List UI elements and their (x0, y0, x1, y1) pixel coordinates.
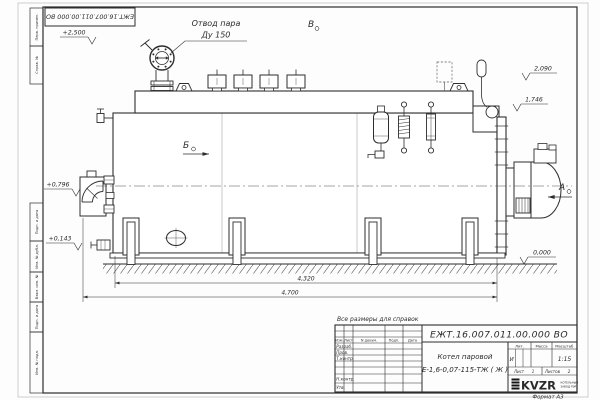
lifting-lug-right (450, 84, 468, 92)
ground (103, 264, 557, 274)
sheet-value: 1 (532, 369, 535, 374)
elevation-label: +0,796 (47, 182, 70, 189)
top-stamp: ЕЖТ.16.007.011.00.000 ВО (45, 8, 135, 26)
sheets-label: Листов (544, 369, 561, 374)
view-label-a: А (558, 183, 565, 193)
boiler-drawing: Отвод пара Ду 150 (44, 19, 572, 302)
margin-label-inv-dubl: Инв. № дубл. (35, 244, 39, 269)
product-name-line2: Е-1,6-0,07-115-ТЖ ( Ж ) (422, 366, 508, 374)
elevation-label: 1,746 (525, 97, 543, 104)
margin-label-inv-podl: Инв. № подл. (35, 350, 39, 375)
margin-labels: Перв. примен. Справ. № Подп. и дата Инв.… (35, 14, 39, 375)
steam-outlet-label-1: Отвод пара (192, 19, 241, 28)
sheets-value: 2 (568, 369, 571, 374)
elevation-label: +0,143 (49, 236, 72, 243)
sheet-label: Лист (513, 369, 525, 374)
burner (506, 144, 561, 219)
row-nkontr: Н.контр. (336, 377, 354, 382)
margin-label-podp-data-1: Подп. и дата (35, 210, 39, 234)
product-name-line1: Котел паровой (438, 353, 493, 361)
logo-bars-icon (512, 379, 520, 390)
elevation-mark-1746: 1,746 (513, 97, 548, 112)
view-arrow-v: В (308, 20, 319, 30)
elevation-mark-0143: +0,143 (46, 236, 82, 251)
elevation-mark-0796: +0,796 (44, 182, 80, 197)
burner-grill (516, 198, 530, 213)
margin-label-vzam-inv: Взам. инв. № (35, 275, 39, 300)
ground-hatch (103, 264, 557, 274)
row-tkontr: Т.контр. (336, 356, 354, 361)
top-stamp-text: ЕЖТ.16.007.011.00.000 ВО (46, 13, 134, 20)
margin-label-podp-data-2: Подп. и дата (35, 305, 39, 329)
format-note: Формат А3 (532, 395, 564, 400)
logo-subtext-2: ЗАВОД РЭР (561, 385, 577, 389)
doc-number: ЕЖТ.16.007.011.00.000 ВО (430, 330, 568, 341)
steam-outlet-callout: Отвод пара Ду 150 (171, 19, 247, 53)
elevation-mark-2500: +2,500 (60, 30, 96, 45)
hatch-box (260, 70, 278, 92)
blowdown-valve (91, 240, 110, 250)
col-header-ndoc: N докум. (361, 338, 377, 342)
lifting-lug-left (176, 84, 192, 92)
lit-value: И (510, 357, 514, 363)
phantom-valve-outline (437, 62, 452, 91)
steam-outlet-label-2: Ду 150 (201, 31, 231, 40)
base-rail (110, 253, 505, 258)
dim-overall-length: 4,700 (281, 290, 298, 297)
drawing-sheet: ЕЖТ.16.007.011.00.000 ВО Перв. примен. С… (0, 0, 600, 400)
col-header-list: Лист (344, 338, 353, 342)
drum-top-hatches (208, 70, 305, 92)
elevation-label: +2,500 (63, 30, 86, 37)
hatch-box (208, 70, 226, 92)
dim-body-length: 4,320 (297, 276, 314, 283)
mass-header: Масса (535, 343, 547, 348)
elevation-mark-2090: 2,090 (522, 66, 557, 81)
hatch-box (234, 70, 252, 92)
col-header-podp: Подп. (389, 338, 400, 342)
reference-note: Все размеры для справок (337, 316, 419, 323)
logo-text: KVZR (521, 379, 556, 393)
hatch-box (287, 70, 305, 92)
view-label-v: В (308, 20, 314, 30)
scale-header: Масштаб (555, 343, 574, 348)
steam-outlet-valve (141, 40, 175, 91)
view-label-b: Б (183, 141, 189, 151)
row-prov: Пров. (336, 350, 348, 355)
row-razrab: Разраб. (336, 344, 352, 349)
col-header-data: Дата (408, 338, 417, 342)
scale-value: 1:15 (558, 356, 572, 363)
steam-drum-casing (135, 91, 473, 113)
title-block: Все размеры для справок (335, 316, 578, 393)
row-utv: Утв. (336, 385, 345, 390)
margin-label-perv-primen: Перв. примен. (35, 14, 39, 41)
elevation-label: 0,000 (533, 250, 551, 257)
gas-duct-elbow (80, 171, 106, 216)
burner-motor (534, 149, 556, 163)
company-logo: KVZR КОТЕЛЬНЫЙ ЗАВОД РЭР (512, 379, 579, 393)
elevation-label: 2,090 (534, 66, 552, 73)
elevation-mark-0000: 0,000 (520, 250, 556, 265)
lit-header: Лит. (515, 343, 524, 348)
margin-label-sprav: Справ. № (35, 56, 39, 74)
col-header-izm: Изм. (335, 338, 343, 342)
